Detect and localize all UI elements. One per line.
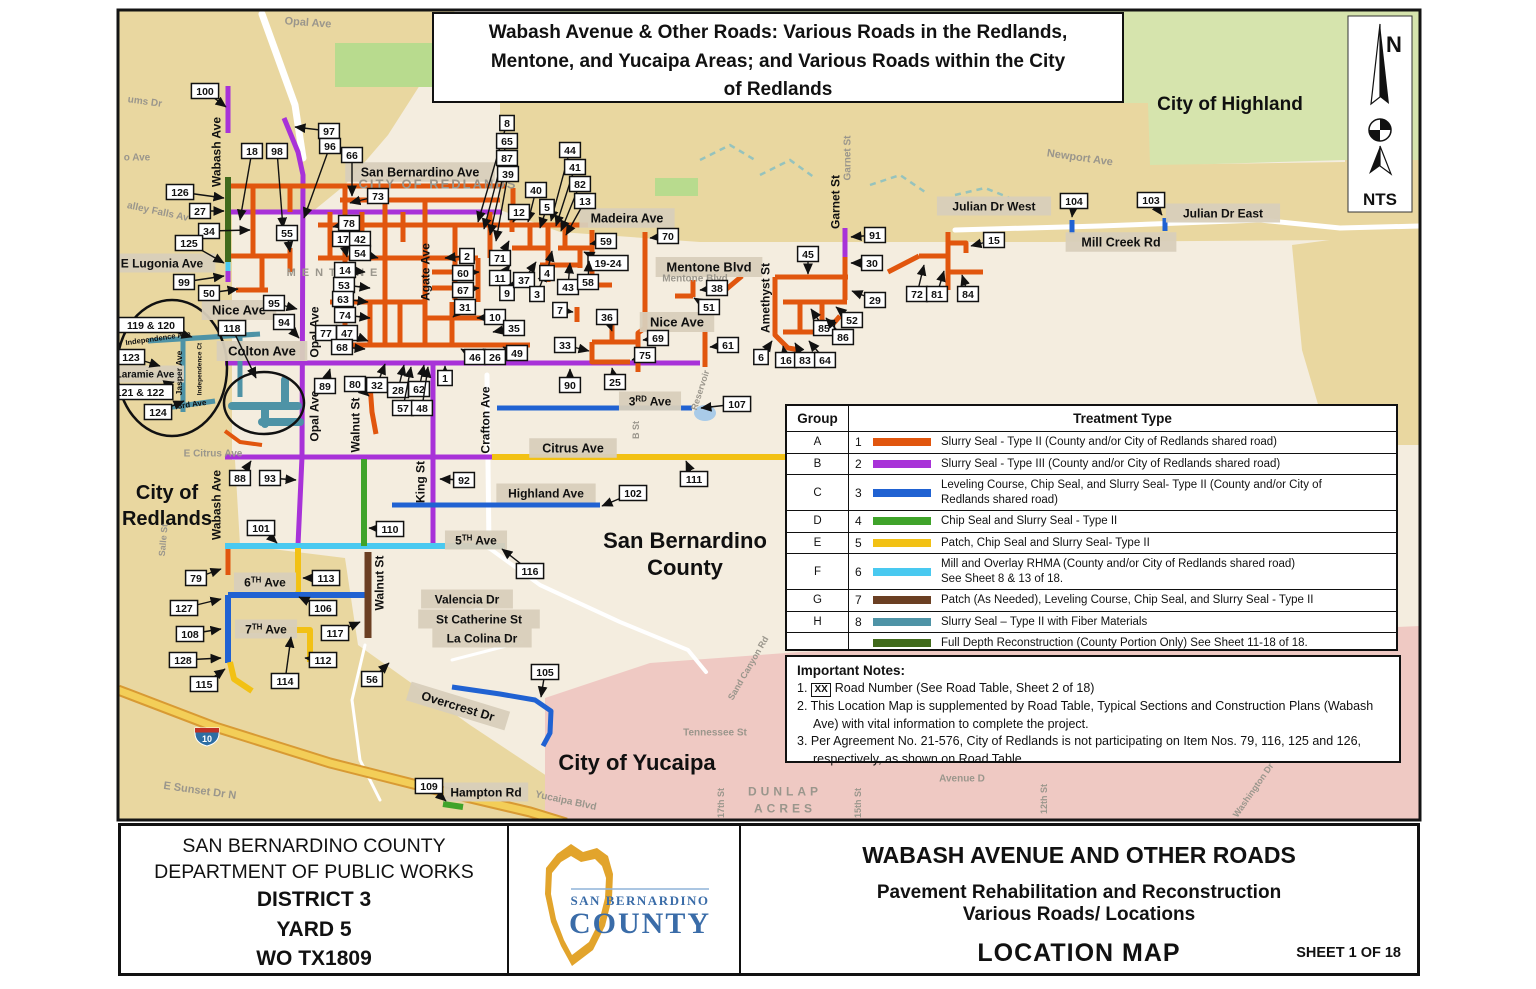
svg-text:91: 91 <box>869 230 881 242</box>
svg-text:13: 13 <box>579 196 591 208</box>
legend-group-letter: C <box>787 475 849 510</box>
svg-text:26: 26 <box>489 352 501 364</box>
svg-text:44: 44 <box>564 145 576 157</box>
svg-text:53: 53 <box>338 280 350 292</box>
svg-text:46: 46 <box>469 352 481 364</box>
street-label: Julian Dr West <box>952 199 1035 213</box>
street-label: Avenue D <box>939 774 985 785</box>
legend-treatment-text: Leveling Course, Chip Seal, and Slurry S… <box>941 478 1322 506</box>
agency-name: SAN BERNARDINO COUNTY <box>121 834 507 860</box>
svg-text:62: 62 <box>413 384 425 396</box>
street-label: Walnut St <box>372 556 386 611</box>
work-order: WO TX1809 <box>121 944 507 973</box>
svg-text:42: 42 <box>354 234 366 246</box>
legend-group-number: 1 <box>855 435 871 449</box>
svg-text:118: 118 <box>224 323 241 335</box>
legend-row-B: B2Slurry Seal - Type III (County and/or … <box>787 453 1396 475</box>
svg-text:75: 75 <box>639 350 651 362</box>
svg-text:31: 31 <box>459 302 471 314</box>
svg-text:92: 92 <box>458 475 470 487</box>
nts-label: NTS <box>1363 190 1397 209</box>
svg-text:107: 107 <box>728 399 746 411</box>
svg-text:80: 80 <box>349 379 361 391</box>
svg-text:16: 16 <box>780 355 792 367</box>
svg-text:125: 125 <box>180 238 198 250</box>
map-title-box: Wabash Avenue & Other Roads: Various Roa… <box>432 12 1124 103</box>
north-n-label: N <box>1386 32 1402 57</box>
svg-text:48: 48 <box>416 403 428 415</box>
svg-text:30: 30 <box>866 258 878 270</box>
svg-text:126: 126 <box>171 187 189 199</box>
legend-treatment-text: Mill and Overlay RHMA (County and/or Cit… <box>941 557 1295 585</box>
notes-title: Important Notes: <box>797 661 1389 680</box>
street-label: Hampton Rd <box>450 785 521 799</box>
map-title-line: Wabash Avenue & Other Roads: Various Roa… <box>434 19 1122 48</box>
project-subtitle-2: Various Roads/ Locations <box>741 904 1417 926</box>
street-label: Citrus Ave <box>542 442 604 456</box>
svg-text:99: 99 <box>178 277 190 289</box>
svg-text:78: 78 <box>343 218 355 230</box>
svg-text:70: 70 <box>662 231 674 243</box>
svg-text:49: 49 <box>511 348 523 360</box>
svg-text:117: 117 <box>327 628 344 640</box>
svg-text:52: 52 <box>846 315 858 327</box>
svg-text:1: 1 <box>442 373 448 385</box>
svg-text:123: 123 <box>122 352 140 364</box>
legend-group-letter: F <box>787 554 849 589</box>
title-block: SAN BERNARDINO COUNTY DEPARTMENT OF PUBL… <box>118 823 1420 976</box>
svg-text:10: 10 <box>489 312 501 324</box>
svg-text:47: 47 <box>341 328 353 340</box>
svg-text:8: 8 <box>504 118 510 130</box>
svg-text:90: 90 <box>564 380 576 392</box>
legend-table: Group Treatment Type A1Slurry Seal - Typ… <box>785 404 1398 651</box>
svg-text:14: 14 <box>339 265 351 277</box>
legend-color-swatch <box>873 568 931 576</box>
legend-row-E: E5Patch, Chip Seal and Slurry Seal- Type… <box>787 532 1396 554</box>
legend-row-C: C3Leveling Course, Chip Seal, and Slurry… <box>787 474 1396 510</box>
svg-text:34: 34 <box>203 226 215 238</box>
legend-treatment-text: Chip Seal and Slurry Seal - Type II <box>941 514 1117 528</box>
legend-group-number: 8 <box>855 615 871 629</box>
svg-text:102: 102 <box>624 488 642 500</box>
svg-text:18: 18 <box>246 146 258 158</box>
svg-text:81: 81 <box>931 289 943 301</box>
street-label: Mill Creek Rd <box>1081 236 1160 250</box>
legend-group-letter: A <box>787 432 849 453</box>
treatment-road <box>443 804 463 807</box>
yard: YARD 5 <box>121 915 507 944</box>
street-label: 17th St <box>716 788 726 818</box>
svg-text:74: 74 <box>339 310 351 322</box>
svg-text:17: 17 <box>337 234 349 246</box>
svg-text:61: 61 <box>722 340 734 352</box>
svg-text:114: 114 <box>277 676 294 688</box>
svg-text:103: 103 <box>1142 195 1160 207</box>
svg-text:77: 77 <box>320 328 332 340</box>
street-label: Amethyst St <box>758 263 772 333</box>
street-label: Crafton Ave <box>478 386 492 453</box>
legend-treatment-text: Slurry Seal - Type III (County and/or Ci… <box>941 457 1280 471</box>
street-label: Jasper Ave <box>174 350 184 395</box>
legend-group-number: 3 <box>855 486 871 500</box>
legend-treatment-text: Patch, Chip Seal and Slurry Seal- Type I… <box>941 536 1150 550</box>
legend-color-swatch <box>873 489 931 497</box>
street-label: 7TH Ave <box>245 622 287 636</box>
street-label: Julian Dr East <box>1183 206 1263 220</box>
region <box>655 178 698 196</box>
svg-text:88: 88 <box>234 473 246 485</box>
svg-text:7: 7 <box>557 305 563 317</box>
svg-text:5: 5 <box>544 202 550 214</box>
street-label: E Citrus Ave <box>184 449 243 460</box>
svg-text:97: 97 <box>323 126 335 138</box>
svg-text:43: 43 <box>562 282 574 294</box>
legend-treatment-text: Patch (As Needed), Leveling Course, Chip… <box>941 593 1313 607</box>
svg-text:93: 93 <box>264 473 276 485</box>
legend-header-group: Group <box>787 406 849 431</box>
street-label: King St <box>413 461 427 503</box>
street-label: San Bernardino <box>603 528 767 553</box>
street-label: 15th St <box>853 788 863 818</box>
legend-color-swatch <box>873 438 931 446</box>
street-label: Colton Ave <box>228 344 296 359</box>
legend-color-swatch <box>873 618 931 626</box>
svg-text:66: 66 <box>346 150 358 162</box>
street-label: Madeira Ave <box>591 212 664 226</box>
svg-text:41: 41 <box>569 162 581 174</box>
project-title: WABASH AVENUE AND OTHER ROADS <box>741 842 1417 869</box>
svg-text:95: 95 <box>268 298 280 310</box>
svg-text:79: 79 <box>190 573 202 585</box>
svg-text:109: 109 <box>420 781 438 793</box>
svg-text:89: 89 <box>319 381 331 393</box>
street-label: DUNLAP <box>748 784 822 798</box>
legend-treatment-text: Full Depth Reconstruction (County Portio… <box>941 636 1308 650</box>
street-label: 3RD Ave <box>629 394 672 408</box>
svg-text:45: 45 <box>802 249 814 261</box>
svg-text:36: 36 <box>601 312 613 324</box>
project-cell: WABASH AVENUE AND OTHER ROADS Pavement R… <box>741 826 1417 973</box>
svg-text:60: 60 <box>457 268 469 280</box>
street-label: Nice Ave <box>650 315 704 330</box>
legend-group-letter: E <box>787 533 849 554</box>
svg-text:32: 32 <box>371 380 383 392</box>
street-label: Garnet St <box>843 135 854 181</box>
street-label: B St <box>631 421 641 439</box>
street-label: City of Highland <box>1157 94 1303 115</box>
svg-text:69: 69 <box>652 333 664 345</box>
legend-treatment-text: Slurry Seal - Type II (County and/or Cit… <box>941 435 1277 449</box>
svg-text:15: 15 <box>988 235 1000 247</box>
svg-text:19-24: 19-24 <box>595 258 622 270</box>
svg-text:72: 72 <box>911 289 923 301</box>
sheet-number: SHEET 1 OF 18 <box>1296 945 1401 961</box>
svg-text:124: 124 <box>149 407 167 419</box>
svg-text:38: 38 <box>711 283 723 295</box>
legend-row-H: H8Slurry Seal – Type II with Fiber Mater… <box>787 611 1396 633</box>
legend-row-G: G7Patch (As Needed), Leveling Course, Ch… <box>787 589 1396 611</box>
legend-group-number: 4 <box>855 514 871 528</box>
note-1: 1.XXRoad Number (See Road Table, Sheet 2… <box>797 680 1389 698</box>
svg-text:4: 4 <box>544 268 550 280</box>
svg-text:87: 87 <box>501 153 513 165</box>
svg-text:119 & 120: 119 & 120 <box>127 320 175 332</box>
svg-text:67: 67 <box>457 285 469 297</box>
svg-text:85: 85 <box>818 323 830 335</box>
important-notes: Important Notes: 1.XXRoad Number (See Ro… <box>785 655 1401 763</box>
street-label: Laramie Ave <box>116 370 175 381</box>
svg-text:65: 65 <box>501 136 513 148</box>
district: DISTRICT 3 <box>121 885 507 914</box>
svg-text:51: 51 <box>703 302 715 314</box>
legend-color-swatch <box>873 539 931 547</box>
street-label: Valencia Dr <box>435 592 500 606</box>
svg-text:71: 71 <box>494 253 506 265</box>
legend-color-swatch <box>873 460 931 468</box>
street-label: Agate Ave <box>418 243 432 301</box>
street-label: ACRES <box>754 801 816 815</box>
county-logo: SAN BERNARDINO COUNTY <box>509 826 739 974</box>
map-title-line: Mentone, and Yucaipa Areas; and Various … <box>434 48 1122 77</box>
svg-text:12: 12 <box>513 207 525 219</box>
svg-text:110: 110 <box>382 524 399 536</box>
legend-group-number: 7 <box>855 593 871 607</box>
street-label: Independence Ct <box>196 342 203 395</box>
svg-text:104: 104 <box>1065 196 1083 208</box>
svg-text:111: 111 <box>686 474 703 486</box>
svg-text:105: 105 <box>536 667 554 679</box>
svg-text:113: 113 <box>318 573 335 585</box>
legend-group-letter: B <box>787 454 849 475</box>
svg-text:96: 96 <box>324 141 336 153</box>
legend-group-letter: D <box>787 511 849 532</box>
street-label: St Catherine St <box>436 612 522 626</box>
svg-text:100: 100 <box>196 86 214 98</box>
svg-text:106: 106 <box>314 603 332 615</box>
street-label: 12th St <box>1039 784 1049 814</box>
road-number-symbol: XX <box>811 683 830 697</box>
legend-row-A: A1Slurry Seal - Type II (County and/or C… <box>787 432 1396 453</box>
svg-text:11: 11 <box>494 273 505 285</box>
north-arrow: NNTS <box>1348 16 1412 212</box>
street-label: Highland Ave <box>508 486 584 500</box>
svg-text:37: 37 <box>518 275 530 287</box>
region <box>335 43 442 87</box>
svg-text:6: 6 <box>758 352 764 364</box>
svg-text:59: 59 <box>600 236 612 248</box>
svg-text:55: 55 <box>281 228 293 240</box>
svg-text:68: 68 <box>336 342 348 354</box>
legend-header-type: Treatment Type <box>849 406 1396 431</box>
street-label: County <box>647 555 724 580</box>
svg-text:27: 27 <box>194 206 206 218</box>
legend-row-F: F6Mill and Overlay RHMA (County and/or C… <box>787 553 1396 589</box>
svg-text:54: 54 <box>354 248 366 260</box>
county-logo-cell: SAN BERNARDINO COUNTY <box>509 826 741 973</box>
project-subtitle-1: Pavement Rehabilitation and Reconstructi… <box>741 882 1417 904</box>
svg-text:40: 40 <box>530 185 542 197</box>
location-map-sheet: 10San Bernardino AveMadeira AveMentone B… <box>0 0 1536 989</box>
legend-group-number: 6 <box>855 565 871 579</box>
legend-color-swatch <box>873 639 931 647</box>
street-label: City of <box>136 482 199 504</box>
svg-text:2: 2 <box>464 251 470 263</box>
svg-text:86: 86 <box>837 332 849 344</box>
agency-dept: DEPARTMENT OF PUBLIC WORKS <box>121 860 507 886</box>
svg-text:25: 25 <box>609 377 621 389</box>
legend-treatment-text: Slurry Seal – Type II with Fiber Materia… <box>941 615 1147 629</box>
svg-text:82: 82 <box>574 179 586 191</box>
svg-text:112: 112 <box>315 655 332 667</box>
svg-text:56: 56 <box>366 674 378 686</box>
street-label: Wabash Ave <box>209 117 223 187</box>
svg-text:COUNTY: COUNTY <box>569 907 711 940</box>
svg-text:64: 64 <box>819 355 831 367</box>
svg-text:84: 84 <box>962 289 974 301</box>
agency-cell: SAN BERNARDINO COUNTY DEPARTMENT OF PUBL… <box>121 826 509 973</box>
svg-text:SAN BERNARDINO: SAN BERNARDINO <box>570 893 709 908</box>
note-3: 3. Per Agreement No. 21-576, City of Red… <box>797 733 1389 769</box>
legend-group-letter <box>787 633 849 651</box>
svg-text:115: 115 <box>196 679 213 691</box>
svg-text:35: 35 <box>508 323 520 335</box>
svg-text:29: 29 <box>869 295 881 307</box>
street-label: Nice Ave <box>212 303 266 318</box>
legend-group-letter: G <box>787 590 849 611</box>
svg-text:101: 101 <box>252 523 270 535</box>
svg-text:128: 128 <box>174 655 192 667</box>
svg-text:108: 108 <box>181 629 199 641</box>
street-label: o Ave <box>124 153 151 164</box>
svg-text:127: 127 <box>175 603 193 615</box>
legend-row-D: D4Chip Seal and Slurry Seal - Type II <box>787 510 1396 532</box>
street-label: City of Yucaipa <box>558 750 716 775</box>
svg-text:39: 39 <box>502 169 514 181</box>
legend-header: Group Treatment Type <box>787 406 1396 432</box>
street-label: Walnut St <box>348 398 362 453</box>
legend-group-number: 2 <box>855 457 871 471</box>
street-label: 6TH Ave <box>244 575 286 589</box>
street-label: Garnet St <box>828 175 842 229</box>
legend-color-swatch <box>873 596 931 604</box>
street-label: La Colina Dr <box>447 631 518 645</box>
street-label: Mentone Blvd <box>666 260 751 275</box>
svg-text:50: 50 <box>203 288 215 300</box>
note-2: 2. This Location Map is supplemented by … <box>797 698 1389 734</box>
svg-text:98: 98 <box>271 146 283 158</box>
svg-text:28: 28 <box>392 385 404 397</box>
svg-text:116: 116 <box>522 566 539 578</box>
street-label: E Lugonia Ave <box>121 256 204 270</box>
map-title-line: of Redlands <box>434 76 1122 105</box>
svg-text:3: 3 <box>534 289 540 301</box>
svg-text:73: 73 <box>372 191 384 203</box>
svg-text:58: 58 <box>582 277 594 289</box>
street-label: Tennessee St <box>683 728 747 739</box>
svg-text:10: 10 <box>202 734 212 744</box>
svg-text:121 & 122: 121 & 122 <box>116 387 165 399</box>
legend-row: Full Depth Reconstruction (County Portio… <box>787 632 1396 651</box>
svg-text:63: 63 <box>337 294 349 306</box>
street-label: Opal Ave <box>307 390 321 441</box>
street-label: 5TH Ave <box>455 533 497 547</box>
svg-text:94: 94 <box>278 317 290 329</box>
legend-color-swatch <box>873 517 931 525</box>
svg-text:33: 33 <box>559 340 571 352</box>
legend-group-number: 5 <box>855 536 871 550</box>
svg-text:83: 83 <box>799 355 811 367</box>
svg-text:57: 57 <box>397 403 409 415</box>
svg-text:9: 9 <box>504 288 510 300</box>
legend-group-letter: H <box>787 612 849 633</box>
